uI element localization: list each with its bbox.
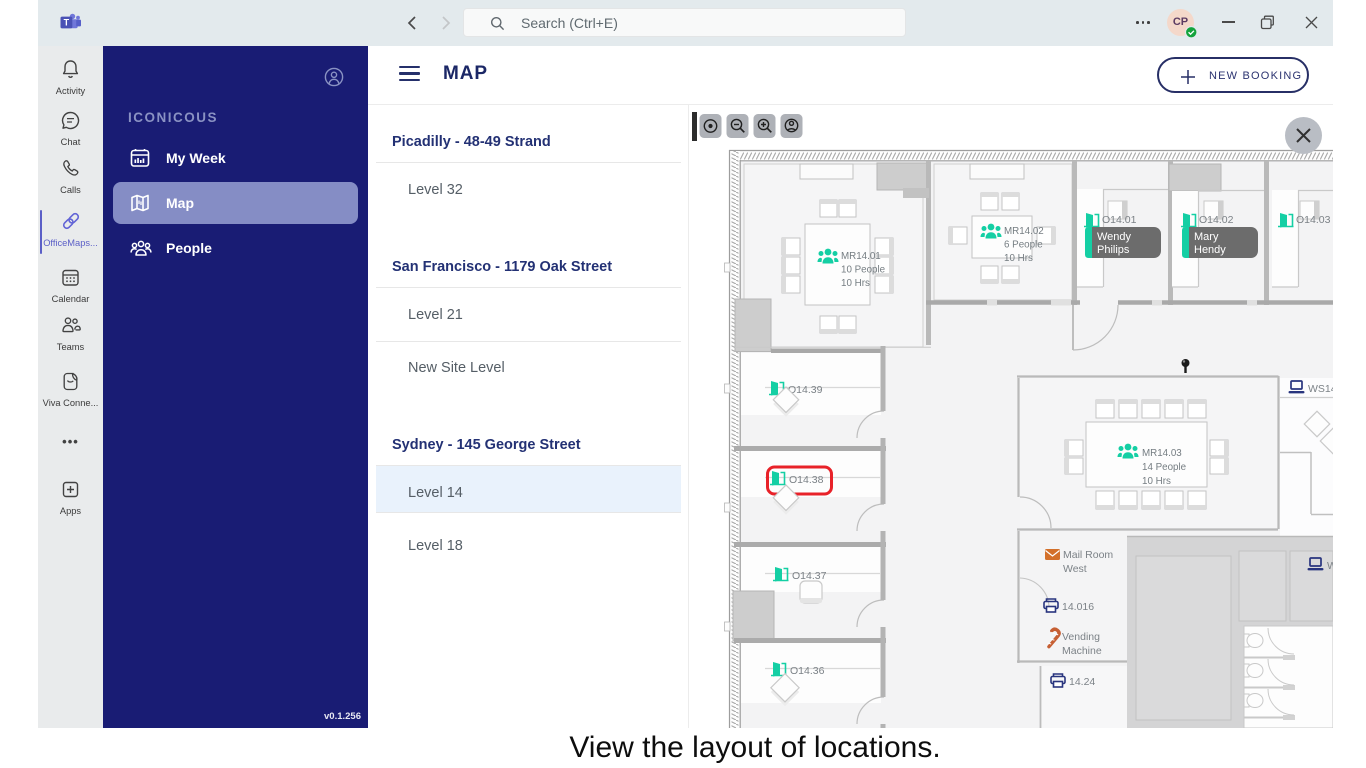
svg-text:O14.03: O14.03 xyxy=(1296,214,1331,226)
svg-text:MR14.03: MR14.03 xyxy=(1142,448,1182,459)
svg-text:Mail Room: Mail Room xyxy=(1063,549,1113,561)
svg-text:14.24: 14.24 xyxy=(1069,676,1095,688)
svg-text:14 People: 14 People xyxy=(1142,462,1187,473)
svg-text:Hendy: Hendy xyxy=(1194,244,1226,256)
svg-text:Vending: Vending xyxy=(1062,631,1100,643)
svg-text:10 Hrs: 10 Hrs xyxy=(841,278,870,289)
svg-text:MR14.01: MR14.01 xyxy=(841,251,881,262)
svg-text:WS14.: WS14. xyxy=(1308,383,1333,395)
svg-text:14.016: 14.016 xyxy=(1062,601,1094,613)
svg-text:10 People: 10 People xyxy=(841,265,886,276)
svg-text:O14.01: O14.01 xyxy=(1102,214,1137,226)
svg-text:O14.37: O14.37 xyxy=(792,570,827,582)
svg-text:O14.38: O14.38 xyxy=(789,474,824,486)
svg-text:W: W xyxy=(1327,560,1333,572)
svg-text:O14.02: O14.02 xyxy=(1199,214,1234,226)
svg-text:Mary: Mary xyxy=(1194,231,1219,243)
svg-text:T: T xyxy=(64,17,70,27)
svg-text:Machine: Machine xyxy=(1062,645,1102,657)
svg-text:6 People: 6 People xyxy=(1004,240,1043,251)
svg-text:Philips: Philips xyxy=(1097,244,1130,256)
svg-text:Wendy: Wendy xyxy=(1097,231,1132,243)
svg-text:10 Hrs: 10 Hrs xyxy=(1004,253,1033,264)
svg-text:10 Hrs: 10 Hrs xyxy=(1142,476,1171,487)
svg-text:West: West xyxy=(1063,563,1087,575)
svg-text:MR14.02: MR14.02 xyxy=(1004,226,1044,237)
svg-text:O14.36: O14.36 xyxy=(790,665,825,677)
